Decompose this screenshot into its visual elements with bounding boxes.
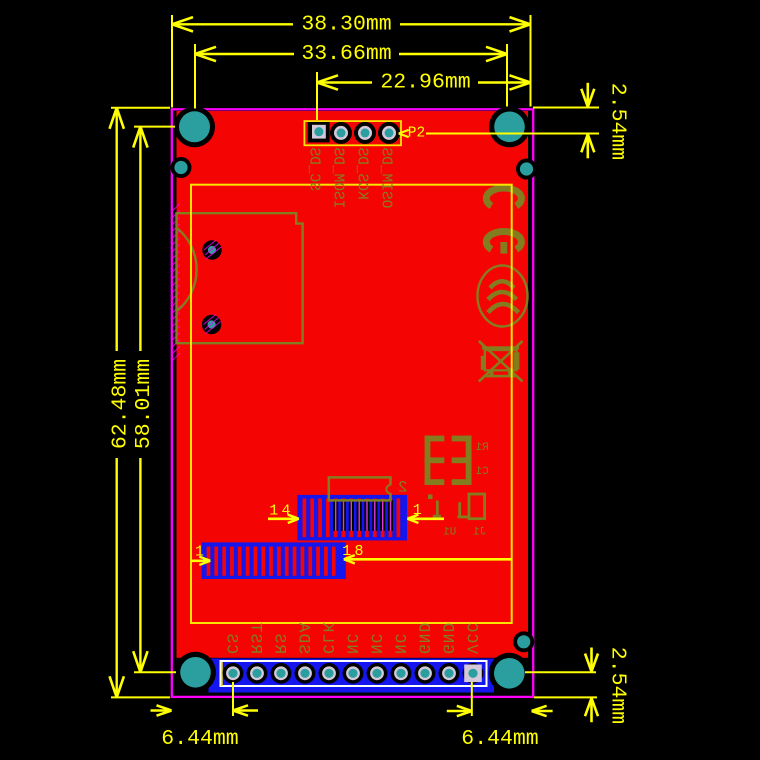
svg-text:GND: GND [439,622,457,654]
svg-text:C1: C1 [475,466,489,478]
svg-text:KCS_DS: KCS_DS [354,147,370,199]
svg-text:ISOM_DS: ISOM_DS [330,147,346,208]
svg-text:J1: J1 [473,527,487,539]
svg-text:2.54mm: 2.54mm [606,83,630,160]
svg-text:58.01mm: 58.01mm [132,359,156,449]
svg-text:22.96mm: 22.96mm [380,71,470,95]
svg-text:VCC: VCC [463,622,481,654]
svg-text:2.54mm: 2.54mm [606,647,630,724]
svg-text:33.66mm: 33.66mm [301,42,391,66]
svg-text:SC_DS: SC_DS [306,147,322,191]
svg-text:CS: CS [223,632,241,654]
svg-text:14: 14 [269,503,293,520]
svg-text:R1: R1 [475,442,489,454]
svg-text:CLK: CLK [319,622,337,654]
svg-text:NC: NC [367,632,385,654]
svg-text:38.30mm: 38.30mm [301,12,391,36]
svg-text:NC: NC [391,632,409,654]
svg-text:6.44mm: 6.44mm [461,727,538,751]
svg-text:2: 2 [398,479,408,497]
svg-text:P2: P2 [408,126,425,142]
svg-text:U1: U1 [443,527,457,539]
svg-text:62.48mm: 62.48mm [109,359,133,449]
svg-text:NC: NC [343,632,361,654]
svg-text:RS: RS [271,632,289,654]
svg-text:RST: RST [247,622,265,654]
svg-text:6.44mm: 6.44mm [161,727,238,751]
svg-text:OSIM_DS: OSIM_DS [378,147,394,208]
svg-text:SDA: SDA [295,622,313,654]
svg-text:GND: GND [415,622,433,654]
